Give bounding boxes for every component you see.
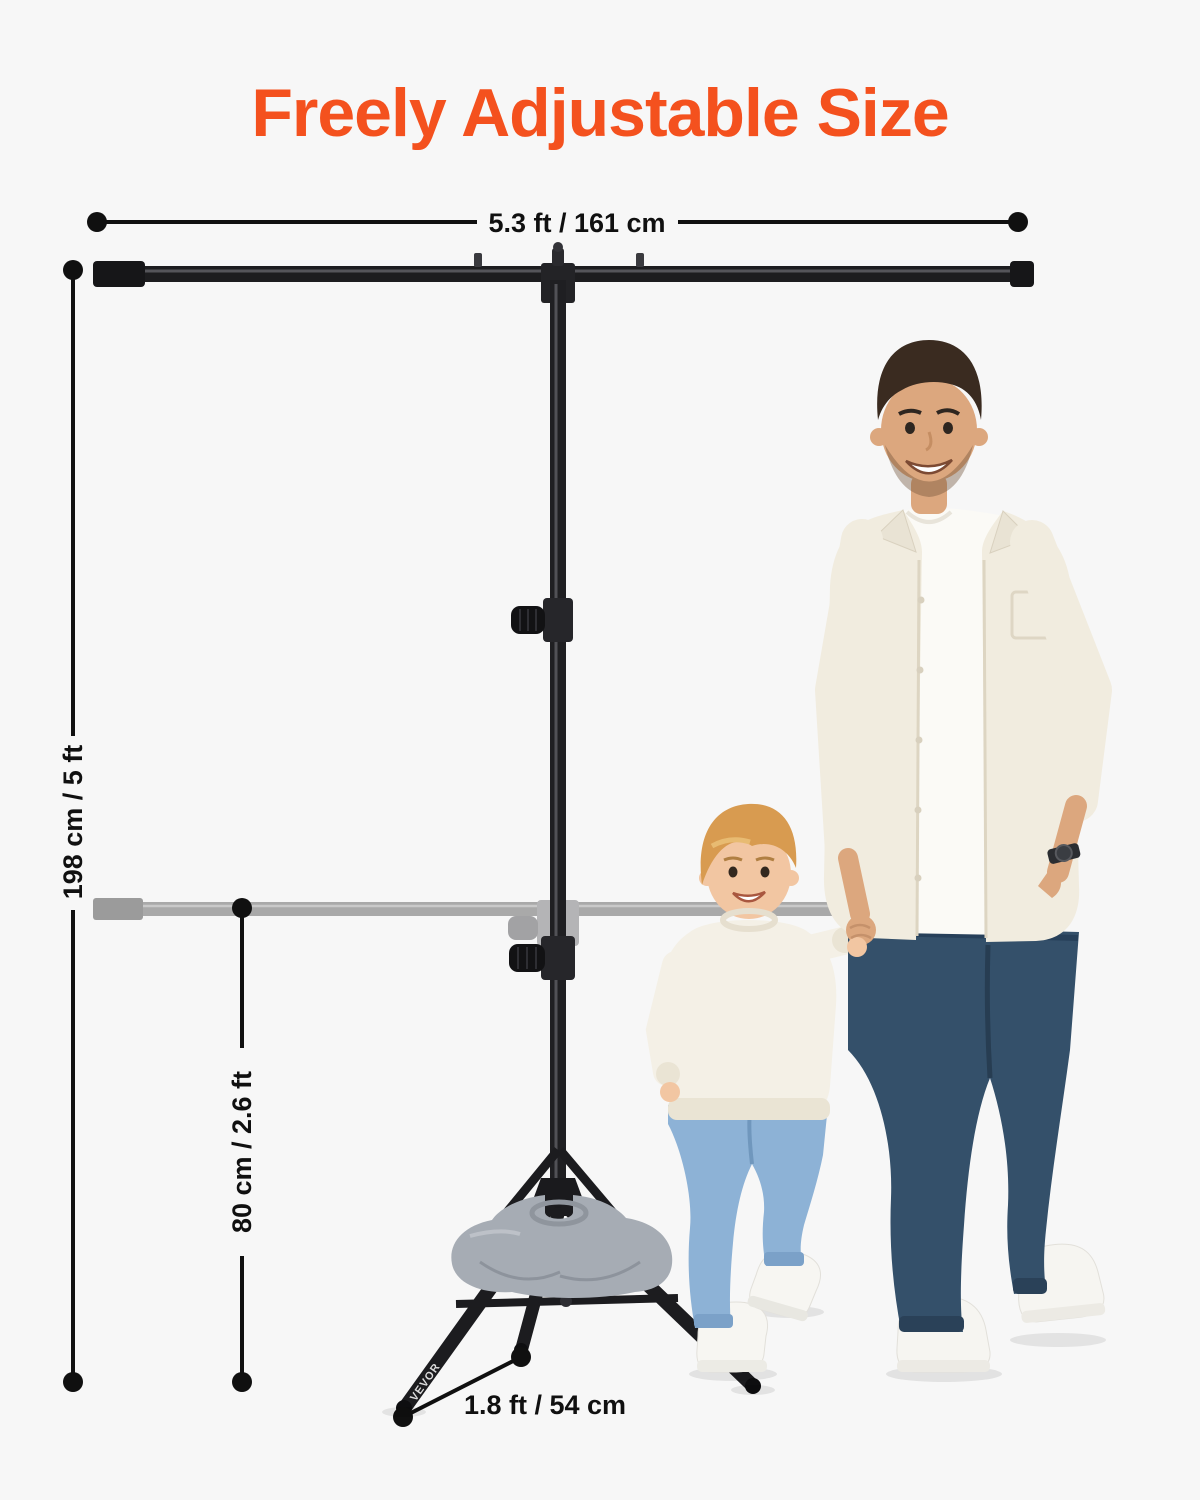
stand-illustration: 5.3 ft / 161 cm 198 cm / 5 ft 80 cm / 2.… xyxy=(0,0,1200,1500)
dimension-label-lowered-height: 80 cm / 2.6 ft xyxy=(227,1071,257,1233)
upper-clamp-knob xyxy=(511,598,573,642)
man-figure xyxy=(824,340,1106,1372)
child-head xyxy=(699,804,799,919)
dimension-label-tripod-leg: 1.8 ft / 54 cm xyxy=(464,1390,626,1420)
dimension-label-crossbar-width: 5.3 ft / 161 cm xyxy=(488,208,665,238)
dimension-label-stand-height: 198 cm / 5 ft xyxy=(58,745,88,900)
man-head xyxy=(870,340,988,497)
lower-clamp-knob xyxy=(509,936,575,980)
product-infographic: Freely Adjustable Size 5.3 ft / 161 cm 1… xyxy=(0,0,1200,1500)
support-pole xyxy=(550,280,566,1198)
